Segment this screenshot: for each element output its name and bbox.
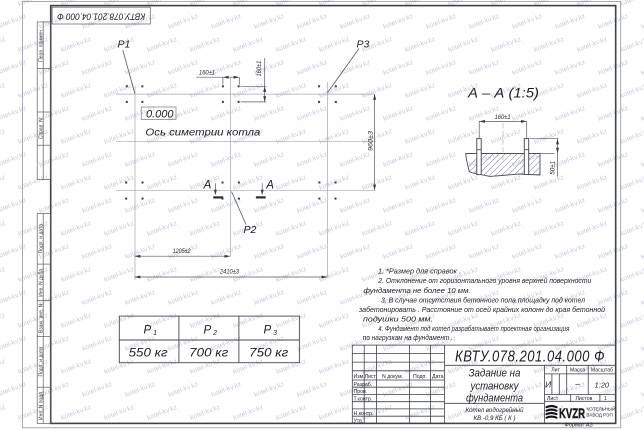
svg-text:50±1: 50±1 — [550, 160, 557, 174]
svg-text:Н.контр.: Н.контр. — [354, 411, 374, 417]
svg-text:Взам. инв. N: Взам. инв. N — [38, 303, 44, 333]
svg-text:160±1: 160±1 — [199, 70, 215, 77]
svg-text:А: А — [203, 179, 212, 191]
svg-text:P2: P2 — [244, 224, 257, 236]
svg-text:Перв. примен.: Перв. примен. — [38, 29, 44, 62]
svg-text:КВТУ.078.201.04.000 Ф: КВТУ.078.201.04.000 Ф — [455, 348, 605, 365]
svg-text:750 кг: 750 кг — [249, 347, 288, 359]
svg-text:Разраб.: Разраб. — [354, 382, 373, 388]
svg-text:по нагрузкам на фундамент .: по нагрузкам на фундамент . — [363, 333, 453, 342]
svg-text:Лист: Лист — [547, 396, 559, 402]
svg-text:Масштаб: Масштаб — [591, 368, 613, 374]
svg-text:Ось симетрии котла: Ось симетрии котла — [145, 127, 260, 138]
svg-text:Утв.: Утв. — [354, 418, 364, 424]
svg-text:Инв. N дубл.: Инв. N дубл. — [38, 268, 44, 297]
svg-text:2. Отклонение от горизонтально: 2. Отклонение от горизонтального уровня … — [377, 276, 591, 285]
svg-text:1:20: 1:20 — [594, 380, 609, 389]
svg-text:установку: установку — [470, 380, 519, 392]
svg-text:Масса: Масса — [570, 368, 585, 374]
svg-text:160±1: 160±1 — [256, 60, 263, 76]
svg-text:Подп. и дата: Подп. и дата — [38, 347, 44, 377]
svg-text:2410±3: 2410±3 — [219, 269, 239, 276]
svg-text:160±1: 160±1 — [495, 114, 511, 121]
svg-text:4. Фундамент под котел разраба: 4. Фундамент под котел разрабатывает про… — [378, 324, 569, 333]
svg-text:ЗАВОД РЭП: ЗАВОД РЭП — [587, 413, 613, 418]
svg-text:550 кг: 550 кг — [129, 347, 168, 359]
svg-text:1. *Размер для справок .: 1. *Размер для справок . — [378, 267, 461, 276]
svg-text:Дата: Дата — [432, 374, 444, 380]
svg-text:Т.контр.: Т.контр. — [354, 396, 373, 402]
svg-text:фундамента не более 10 мм.: фундамента не более 10 мм. — [364, 286, 471, 295]
svg-text:Подп. и дата: Подп. и дата — [38, 224, 44, 254]
svg-text:фундамента: фундамента — [466, 392, 523, 404]
svg-text:0.000: 0.000 — [146, 108, 174, 120]
svg-text:Инв. N подл.: Инв. N подл. — [38, 391, 44, 420]
svg-text:1205±2: 1205±2 — [173, 248, 191, 255]
svg-text:Подп.: Подп. — [413, 374, 427, 380]
svg-text:Пров.: Пров. — [354, 389, 368, 395]
svg-text:Справ. N: Справ. N — [38, 118, 44, 139]
svg-text:А: А — [265, 179, 274, 191]
svg-text:Задание на: Задание на — [469, 367, 521, 379]
svg-text:–: – — [575, 380, 580, 389]
svg-text:Изм.Лист: Изм.Лист — [354, 374, 377, 380]
svg-text:P1: P1 — [118, 39, 131, 51]
svg-text:N докум.: N докум. — [382, 374, 403, 380]
svg-text:Листов: Листов — [576, 396, 593, 402]
svg-text:KVZR: KVZR — [559, 405, 585, 421]
svg-text:700 кг: 700 кг — [189, 347, 228, 359]
svg-text:КВ -0,9 КБ ( К ): КВ -0,9 КБ ( К ) — [474, 415, 516, 422]
svg-text:Котел водогрейный: Котел водогрейный — [466, 407, 525, 414]
svg-text:Формат А3: Формат А3 — [565, 423, 593, 429]
svg-text:1: 1 — [604, 396, 607, 402]
svg-text:забетонировать . Расстояние от: забетонировать . Расстояние от осей край… — [358, 305, 605, 314]
svg-text:подушки 500 мм.: подушки 500 мм. — [363, 315, 433, 324]
svg-text:КОТЕЛЬНЫЙ: КОТЕЛЬНЫЙ — [587, 405, 616, 412]
svg-text:960±3: 960±3 — [368, 131, 375, 151]
svg-text:А – А (1:5): А – А (1:5) — [467, 86, 539, 101]
svg-text:3. В случае отсутствия бетонно: 3. В случае отсутствия бетонного пола пл… — [381, 295, 586, 304]
svg-text:Лит: Лит — [551, 368, 560, 374]
svg-text:КВТУ.078.201.04.000 Ф: КВТУ.078.201.04.000 Ф — [57, 11, 145, 21]
svg-text:И: И — [545, 380, 552, 390]
